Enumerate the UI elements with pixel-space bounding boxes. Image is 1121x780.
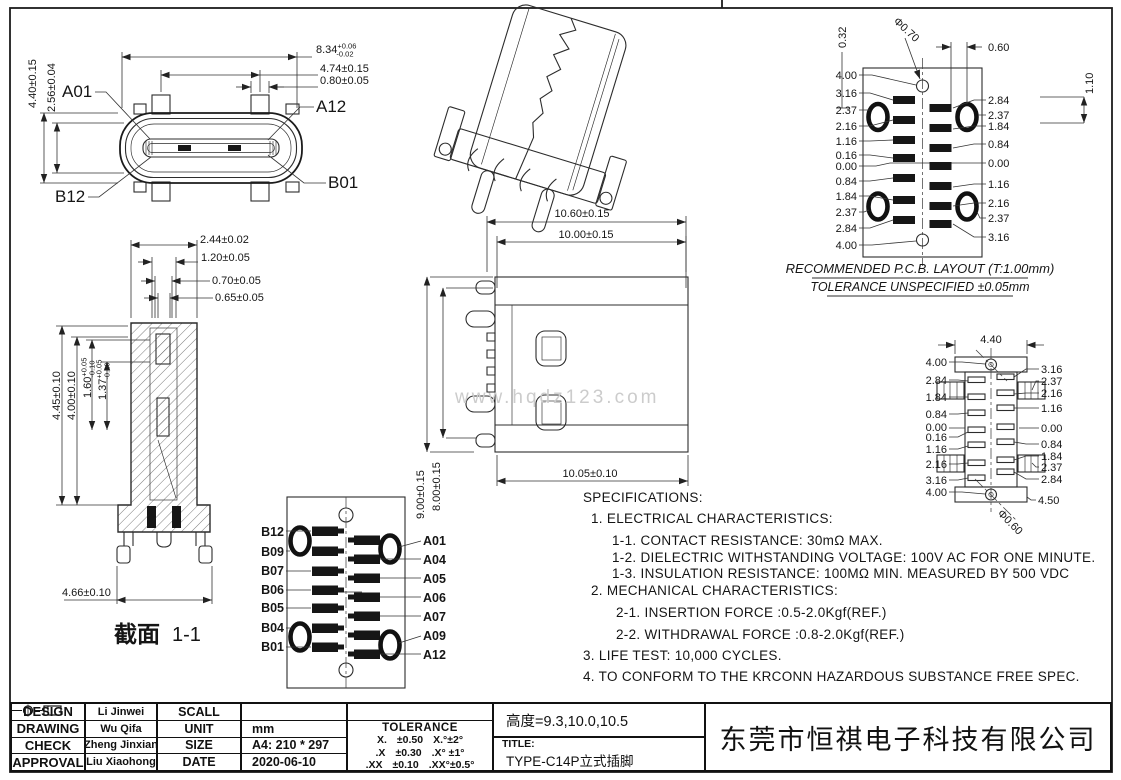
pin-label-b12: B12 xyxy=(55,187,85,206)
pcb2-right-label: 0.84 xyxy=(1041,439,1062,451)
title-block-meta-labels: SCALL UNIT SIZE DATE xyxy=(158,704,242,770)
side-view: 10.60±0.15 10.00±0.15 10.05±0.10 9.00±0.… xyxy=(415,208,688,519)
pinout-label-b07: B07 xyxy=(261,564,284,578)
pcb1-right-label: 0.84 xyxy=(988,139,1009,151)
pcb1-left-label: 3.16 xyxy=(836,88,857,100)
dim-pcb1-span: 0.60 xyxy=(988,42,1009,54)
pcb1-left-label: 4.00 xyxy=(836,240,857,252)
drawing-title-cell: TITLE: TYPE-C14P立式插脚 xyxy=(494,738,704,770)
scale-label: SCALL xyxy=(158,704,240,721)
pcb1-right-label: 1.84 xyxy=(988,121,1009,133)
dim-sec-t2: 1.20±0.05 xyxy=(201,252,250,264)
pcb2-left-label: 0.16 xyxy=(926,432,947,444)
specifications: SPECIFICATIONS: 1. ELECTRICAL CHARACTERI… xyxy=(583,490,1095,684)
pinout-label-b04: B04 xyxy=(261,621,284,635)
dim-sec-t3: 0.70±0.05 xyxy=(212,275,261,287)
pinout-label-a06: A06 xyxy=(423,591,446,605)
spec-line: 1-1. CONTACT RESISTANCE: 30mΩ MAX. xyxy=(612,533,883,548)
section-caption-cn: 截面 xyxy=(114,621,160,647)
title-block-meta-values: mm A4: 210 * 297 2020-06-10 xyxy=(242,704,348,770)
pinout-diagram: B12 B09 B07 B06 B05 B04 B01 A01 A04 A05 … xyxy=(261,497,446,688)
spec-line: 1-3. INSULATION RESISTANCE: 100MΩ MIN. M… xyxy=(612,566,1069,581)
pcb2-left-label: 1.84 xyxy=(926,392,947,404)
pcb2-left-label: 0.84 xyxy=(926,409,947,421)
engineering-drawing-page: 8.34+0.06-0.02 4.74±0.15 0.80±0.05 4.40±… xyxy=(0,0,1121,780)
dim-pcb1-offset: 0.32 xyxy=(837,27,849,48)
pcb1-left-label: 2.37 xyxy=(836,207,857,219)
size-label: SIZE xyxy=(158,738,240,755)
dim-side-v2: 8.00±0.15 xyxy=(431,462,443,511)
pcb1-right-label: 0.00 xyxy=(988,158,1009,170)
dim-front-inner: 2.56±0.04 xyxy=(46,63,58,112)
date-label: DATE xyxy=(158,754,240,770)
unit-value: mm xyxy=(242,721,346,738)
scale-value xyxy=(242,704,346,721)
pin-label-b01: B01 xyxy=(328,173,358,192)
tolerance-row: .XX±0.10.XX°±0.5° xyxy=(348,759,492,772)
pinout-label-a05: A05 xyxy=(423,572,446,586)
pinout-label-a04: A04 xyxy=(423,553,446,567)
pinout-label-b05: B05 xyxy=(261,601,284,615)
check-name: Zheng Jinxian xyxy=(86,738,156,755)
pinout-label-a12: A12 xyxy=(423,648,446,662)
pcb2-left-label: 4.00 xyxy=(926,487,947,499)
tolerance-table: TOLERANCE X.±0.50X.°±2° .X±0.30.X° ±1° .… xyxy=(348,721,492,772)
dim-sec-l1: 4.45±0.10 xyxy=(51,371,63,420)
spec-line: 3. LIFE TEST: 10,000 CYCLES. xyxy=(583,648,782,663)
pcb2-right-label: 3.16 xyxy=(1041,364,1062,376)
pinout-label-b01: B01 xyxy=(261,640,284,654)
pcb1-left-label: 2.16 xyxy=(836,121,857,133)
dim-sec-l2: 4.00±0.10 xyxy=(66,371,78,420)
pcb1-right-label: 2.84 xyxy=(988,95,1009,107)
drawing-label: DRAWING xyxy=(12,721,84,738)
dim-sec-t4: 0.65±0.05 xyxy=(215,292,264,304)
pcb1-left-label: 2.37 xyxy=(836,105,857,117)
dim-front-pitch: 4.74±0.15 xyxy=(320,63,369,75)
spec-line: 1-2. DIELECTRIC WITHSTANDING VOLTAGE: 10… xyxy=(612,550,1095,565)
dim-pcb2-hole: Φ0.60 xyxy=(995,508,1025,538)
section-caption-num: 1-1 xyxy=(172,624,201,646)
pcb2-edge-label: 4.50 xyxy=(1038,495,1059,507)
pcb1-right-label: 1.16 xyxy=(988,179,1009,191)
pinout-pads xyxy=(291,527,400,660)
pcb1-right-label: 3.16 xyxy=(988,232,1009,244)
pcb1-left-label: 0.00 xyxy=(836,161,857,173)
title-block: DESIGN DRAWING CHECK APPROVAL Li Jinwei … xyxy=(10,702,1112,772)
pcb1-tolerance-note: TOLERANCE UNSPECIFIED ±0.05mm xyxy=(810,280,1029,294)
spec-line: 2-2. WITHDRAWAL FORCE :0.8-2.0Kgf(REF.) xyxy=(616,627,905,642)
pinout-label-b09: B09 xyxy=(261,545,284,559)
approval-label: APPROVAL xyxy=(12,754,84,770)
pinout-label-a07: A07 xyxy=(423,610,446,624)
pinout-label-b06: B06 xyxy=(261,583,284,597)
dim-side-v1: 9.00±0.15 xyxy=(415,470,427,519)
dim-side-top2: 10.00±0.15 xyxy=(559,229,614,241)
pcb2-right-label: 2.37 xyxy=(1041,376,1062,388)
tolerance-row: .X±0.30.X° ±1° xyxy=(348,747,492,760)
dim-sec-l4: 1.37+0.05-0.10 xyxy=(95,360,112,400)
tolerance-box: TOLERANCE X.±0.50X.°±2° .X±0.30.X° ±1° .… xyxy=(348,704,494,770)
drawing-canvas: 8.34+0.06-0.02 4.74±0.15 0.80±0.05 4.40±… xyxy=(0,0,1121,780)
dim-sec-t1: 2.44±0.02 xyxy=(200,234,249,246)
pcb2-right-label: 0.00 xyxy=(1041,423,1062,435)
check-label: CHECK xyxy=(12,738,84,755)
pcb1-right-label: 2.37 xyxy=(988,213,1009,225)
pcb1-left-label: 1.84 xyxy=(836,191,857,203)
unit-label: UNIT xyxy=(158,721,240,738)
spec-line: 1. ELECTRICAL CHARACTERISTICS: xyxy=(591,511,833,526)
dim-pcb2-width: 4.40 xyxy=(980,334,1001,346)
watermark: www.hqdz123.com xyxy=(454,387,659,408)
pin-label-a01: A01 xyxy=(62,82,92,101)
pinout-label-a01: A01 xyxy=(423,534,446,548)
title-section: 高度=9.3,10.0,10.5 TITLE: TYPE-C14P立式插脚 xyxy=(494,704,706,770)
spec-line: 4. TO CONFORM TO THE KRCONN HAZARDOUS SU… xyxy=(583,669,1080,684)
pcb2-right-label: 2.16 xyxy=(1041,388,1062,400)
size-value: A4: 210 * 297 xyxy=(242,738,346,755)
pcb2-right-label: 1.16 xyxy=(1041,403,1062,415)
section-view: 2.44±0.02 1.20±0.05 0.70±0.05 0.65±0.05 … xyxy=(51,234,264,647)
spec-line: 2-1. INSERTION FORCE :0.5-2.0Kgf(REF.) xyxy=(616,605,887,620)
pcb2-left-label: 4.00 xyxy=(926,357,947,369)
drawing-name: Wu Qifa xyxy=(86,721,156,738)
pcb2-left-label: 2.16 xyxy=(926,459,947,471)
dim-front-pin: 0.80±0.05 xyxy=(320,75,369,87)
pcb1-left-label: 2.84 xyxy=(836,223,857,235)
design-name: Li Jinwei xyxy=(86,704,156,721)
dim-front-width: 8.34+0.06-0.02 xyxy=(316,42,356,59)
pcb1-right-label: 2.16 xyxy=(988,198,1009,210)
pcb-layout-recommended: 4.00 3.16 2.37 2.16 1.16 0.16 0.00 0.84 … xyxy=(786,15,1096,296)
tolerance-row: X.±0.50X.°±2° xyxy=(348,734,492,747)
dim-pcb1-pitch: 1.10 xyxy=(1084,73,1096,94)
pcb1-left-label: 4.00 xyxy=(836,70,857,82)
title-value: TYPE-C14P立式插脚 xyxy=(502,750,704,770)
title-label: TITLE: xyxy=(502,738,704,750)
pcb2-left-label: 3.16 xyxy=(926,475,947,487)
pinout-label-b12: B12 xyxy=(261,525,284,539)
dim-side-top1: 10.60±0.15 xyxy=(555,208,610,220)
tolerance-header: TOLERANCE xyxy=(382,722,458,734)
dim-side-bottom: 10.05±0.10 xyxy=(563,468,618,480)
spec-line: SPECIFICATIONS: xyxy=(583,490,703,505)
pcb1-left-label: 1.16 xyxy=(836,136,857,148)
company-name: 东莞市恒祺电子科技有限公司 xyxy=(706,704,1110,770)
pcb2-right-label: 2.84 xyxy=(1041,474,1062,486)
front-view: 8.34+0.06-0.02 4.74±0.15 0.80±0.05 4.40±… xyxy=(27,42,369,207)
title-block-names: Li Jinwei Wu Qifa Zheng Jinxian Liu Xiao… xyxy=(86,704,158,770)
approval-name: Liu Xiaohong xyxy=(86,754,156,770)
pcb2-left-label: 2.84 xyxy=(926,375,947,387)
pcb2-left-label: 1.16 xyxy=(926,444,947,456)
pcb2-right-label: 2.37 xyxy=(1041,462,1062,474)
height-note: 高度=9.3,10.0,10.5 xyxy=(494,704,704,738)
dim-front-height: 4.40±0.15 xyxy=(27,59,39,108)
pcb1-caption: RECOMMENDED P.C.B. LAYOUT (T:1.00mm) xyxy=(786,261,1055,276)
spec-line: 2. MECHANICAL CHARACTERISTICS: xyxy=(591,583,838,598)
pcb-layout-bottom: 4.40 4.00 2.84 1.84 0.84 0.00 0.16 1.16 … xyxy=(926,334,1063,537)
pin-label-a12: A12 xyxy=(316,97,346,116)
pinout-label-a09: A09 xyxy=(423,629,446,643)
date-value: 2020-06-10 xyxy=(242,754,346,770)
dim-sec-bottom: 4.66±0.10 xyxy=(62,587,111,599)
pcb1-left-label: 0.84 xyxy=(836,176,857,188)
isometric-view xyxy=(421,0,661,251)
projection-symbol-icon xyxy=(348,704,492,721)
